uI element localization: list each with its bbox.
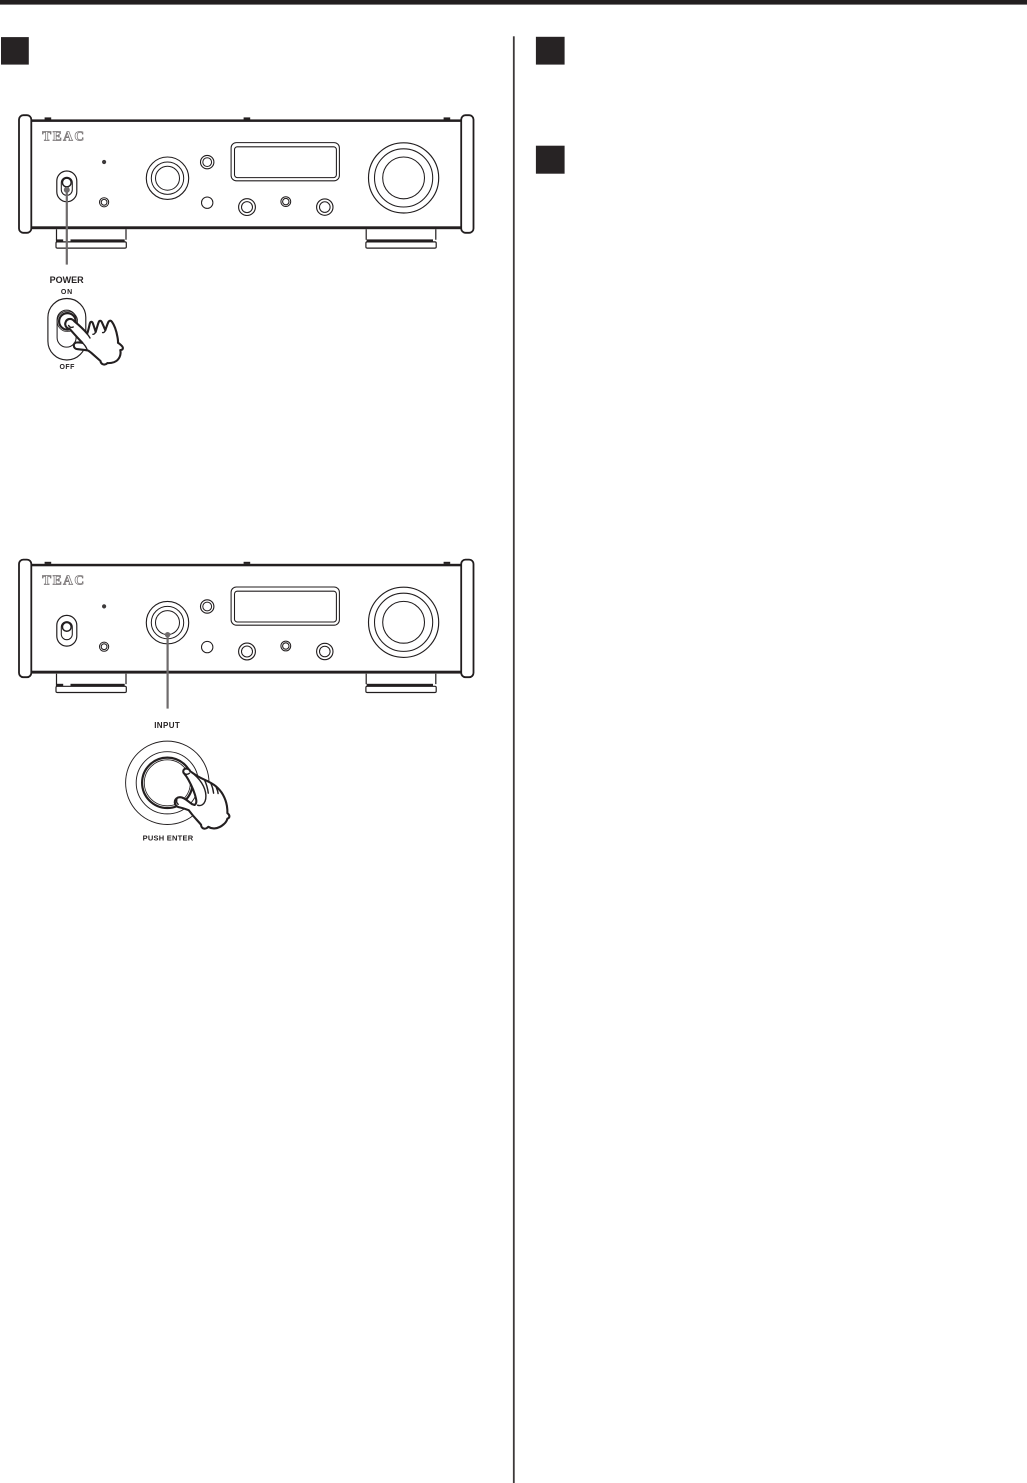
svg-text:PUSH ENTER: PUSH ENTER <box>143 834 194 843</box>
svg-text:OFF: OFF <box>59 364 75 371</box>
svg-text:INPUT: INPUT <box>154 721 180 730</box>
svg-text:ON: ON <box>61 289 73 296</box>
svg-text:POWER: POWER <box>50 275 85 285</box>
svg-text:TEAC: TEAC <box>42 128 85 143</box>
